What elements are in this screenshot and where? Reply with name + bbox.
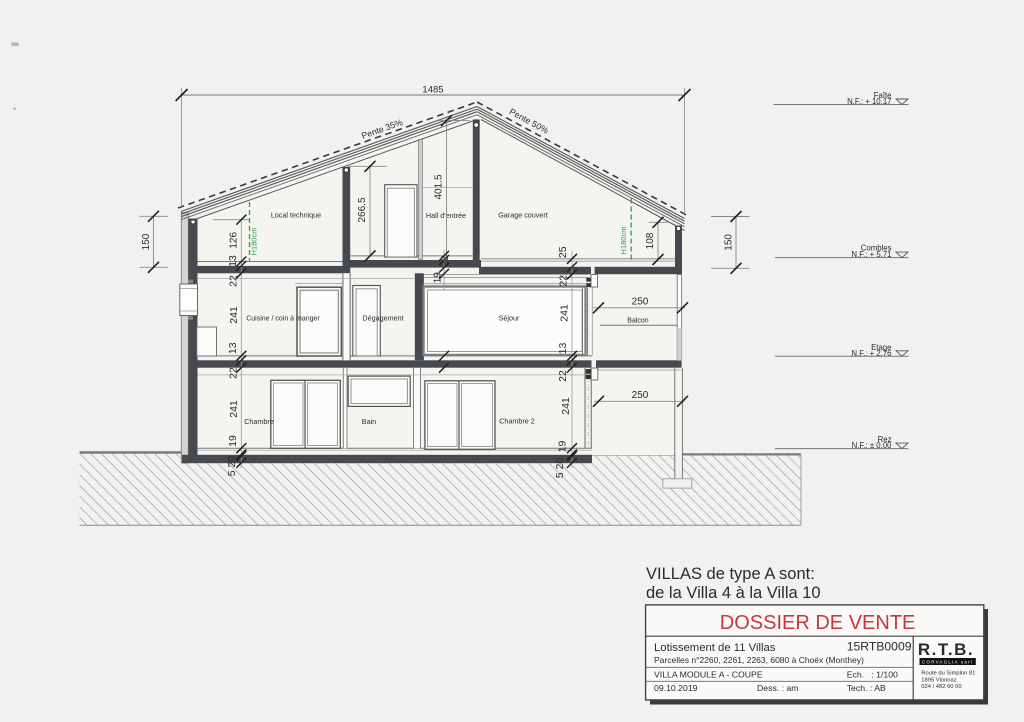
svg-text:Route du Simplon 81: Route du Simplon 81	[921, 671, 975, 677]
svg-text:Tech. : AB: Tech. : AB	[847, 683, 886, 693]
svg-text:1895 Vionnaz: 1895 Vionnaz	[921, 677, 956, 683]
svg-text:Garage couvert: Garage couvert	[498, 211, 548, 220]
svg-text:Lotissement de 11 Villas: Lotissement de 11 Villas	[654, 642, 776, 654]
svg-text:401.5: 401.5	[434, 174, 445, 199]
svg-text:Hall d'entrée: Hall d'entrée	[426, 211, 466, 220]
svg-text:R.T.B.: R.T.B.	[918, 640, 974, 659]
svg-text:Dégagement: Dégagement	[362, 314, 403, 323]
svg-text:150: 150	[724, 234, 735, 251]
svg-text:Bain: Bain	[362, 417, 376, 426]
svg-text:VILLA MODULE A - COUPE: VILLA MODULE A - COUPE	[654, 670, 763, 680]
svg-text:241: 241	[559, 304, 571, 322]
svg-text:de la Villa 4 à la Villa 10: de la Villa 4 à la Villa 10	[646, 584, 821, 602]
svg-text:Local technique: Local technique	[271, 211, 321, 220]
svg-text:22: 22	[440, 255, 451, 267]
svg-text:22: 22	[557, 370, 569, 382]
svg-text:25: 25	[557, 246, 569, 258]
svg-text:N.F.: + 2.76: N.F.: + 2.76	[851, 349, 891, 358]
svg-text:VILLAS de type A sont:: VILLAS de type A sont:	[646, 565, 815, 583]
svg-text:Chambre 2: Chambre 2	[499, 417, 535, 426]
svg-text:19: 19	[557, 441, 569, 453]
svg-text:15RTB0009: 15RTB0009	[847, 640, 912, 654]
svg-text:250: 250	[632, 296, 649, 307]
svg-text:09.10.2019: 09.10.2019	[654, 683, 698, 693]
svg-text:241: 241	[228, 400, 240, 418]
svg-text:250: 250	[632, 390, 649, 401]
svg-text:19: 19	[433, 272, 444, 284]
svg-text:Chambre: Chambre	[244, 417, 274, 426]
svg-text:Parcelles n°2260, 2261, 2263,: Parcelles n°2260, 2261, 2263, 6080 à Cho…	[654, 655, 864, 665]
svg-text:241: 241	[228, 306, 240, 324]
svg-text:1485: 1485	[422, 85, 443, 96]
svg-text:Cuisine / coin à manger: Cuisine / coin à manger	[246, 316, 320, 323]
svg-text:Ech. : 1/100: Ech. : 1/100	[847, 670, 898, 680]
svg-text:241: 241	[560, 397, 572, 415]
svg-text:CORVAGLIA sàrl: CORVAGLIA sàrl	[922, 660, 973, 665]
svg-text:DOSSIER DE VENTE: DOSSIER DE VENTE	[720, 612, 916, 634]
svg-text:13: 13	[227, 342, 239, 354]
svg-text:126: 126	[229, 232, 240, 249]
svg-text:5 20: 5 20	[226, 456, 238, 477]
svg-text:22: 22	[228, 367, 240, 379]
svg-text:H180cm: H180cm	[250, 228, 259, 256]
svg-text:N.F.: + 10.17: N.F.: + 10.17	[847, 97, 891, 106]
svg-text:150: 150	[141, 233, 152, 250]
svg-text:22: 22	[228, 275, 240, 287]
svg-text:024 / 482 60 00: 024 / 482 60 00	[921, 684, 961, 690]
svg-text:13: 13	[227, 255, 239, 267]
svg-text:22: 22	[558, 275, 570, 287]
svg-text:N.F.: ± 0.00: N.F.: ± 0.00	[852, 441, 892, 450]
svg-text:N.F.: + 5.71: N.F.: + 5.71	[851, 250, 891, 259]
svg-text:13: 13	[557, 343, 569, 355]
svg-text:19: 19	[227, 435, 239, 447]
svg-text:5 20: 5 20	[554, 458, 566, 479]
svg-text:266.5: 266.5	[357, 197, 368, 222]
svg-text:Séjour: Séjour	[499, 314, 520, 323]
svg-text:Balcon: Balcon	[627, 318, 649, 325]
svg-text:108: 108	[645, 232, 656, 249]
svg-text:Dess. : am: Dess. : am	[757, 683, 799, 693]
svg-text:H180cm: H180cm	[619, 227, 628, 255]
